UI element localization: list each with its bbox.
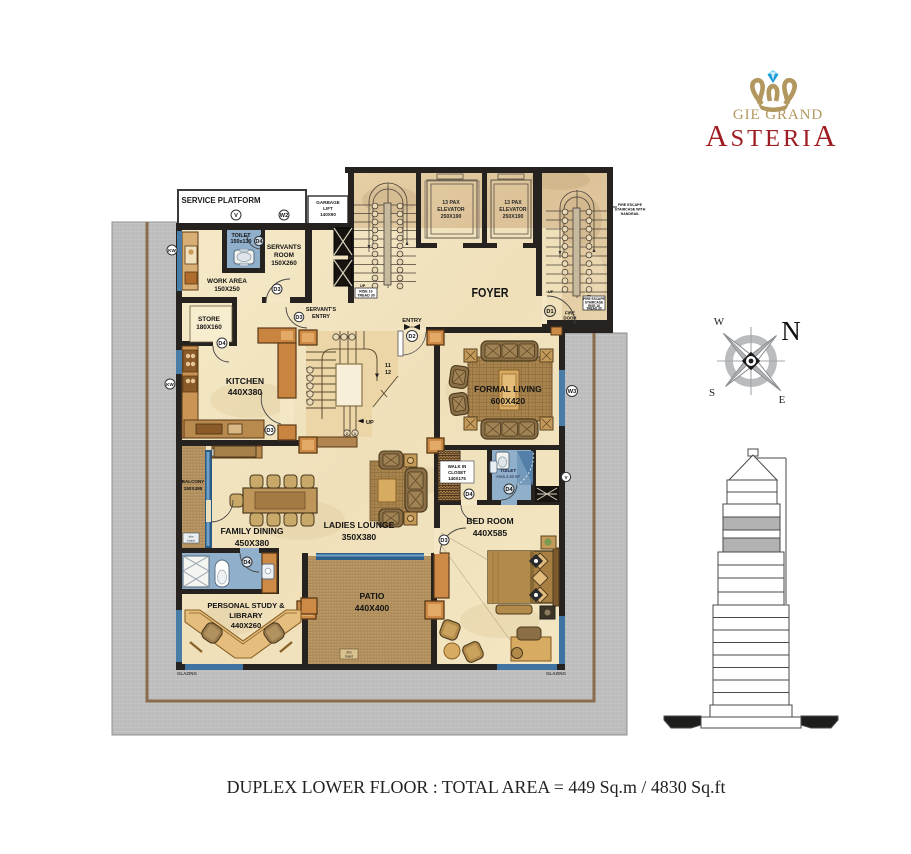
svg-text:12: 12 — [385, 370, 391, 376]
svg-text:D4: D4 — [255, 239, 263, 245]
svg-text:1: 1 — [354, 432, 356, 436]
svg-text:Area 4.40 m²: Area 4.40 m² — [496, 474, 520, 479]
svg-text:150x130: 150x130 — [231, 239, 252, 245]
svg-text:TREAD 30: TREAD 30 — [357, 294, 374, 298]
svg-text:FOYER: FOYER — [472, 286, 509, 300]
svg-text:D3: D3 — [295, 315, 302, 321]
svg-text:GLAZING: GLAZING — [546, 671, 566, 676]
svg-text:KW: KW — [166, 382, 174, 387]
svg-text:ELEVATOR: ELEVATOR — [499, 207, 527, 213]
svg-text:440X400: 440X400 — [355, 603, 390, 613]
svg-text:D4: D4 — [218, 341, 226, 347]
svg-text:W2: W2 — [280, 213, 288, 219]
svg-text:SERVANTS: SERVANTS — [267, 244, 302, 251]
svg-text:BED ROOM: BED ROOM — [466, 516, 513, 526]
svg-text:DOOR: DOOR — [563, 316, 577, 321]
svg-text:D4: D4 — [243, 560, 251, 566]
svg-text:11: 11 — [385, 363, 391, 369]
svg-text:150X495: 150X495 — [184, 486, 203, 491]
svg-text:150X260: 150X260 — [271, 260, 297, 267]
svg-text:N: N — [781, 316, 801, 346]
svg-text:ENTRY: ENTRY — [312, 314, 330, 320]
svg-text:250X190: 250X190 — [441, 214, 462, 220]
svg-text:LIBRARY: LIBRARY — [229, 611, 262, 620]
svg-text:13 PAX: 13 PAX — [504, 200, 522, 206]
svg-text:350X380: 350X380 — [342, 532, 377, 542]
svg-text:UP: UP — [548, 290, 554, 294]
svg-text:450X380: 450X380 — [235, 538, 270, 548]
svg-text:UP: UP — [366, 420, 374, 426]
svg-text:D1: D1 — [546, 309, 553, 315]
svg-text:150X250: 150X250 — [214, 286, 240, 293]
svg-text:WORK AREA: WORK AREA — [207, 278, 247, 285]
svg-text:HANDRAIL: HANDRAIL — [621, 212, 641, 216]
svg-text:KW: KW — [168, 248, 176, 253]
svg-text:board: board — [345, 655, 353, 659]
svg-text:UP: UP — [360, 284, 366, 288]
svg-text:140X90: 140X90 — [320, 212, 336, 217]
svg-text:440X380: 440X380 — [228, 387, 263, 397]
svg-text:board: board — [187, 539, 195, 543]
svg-text:250X190: 250X190 — [503, 214, 524, 220]
svg-text:KITCHEN: KITCHEN — [226, 376, 264, 386]
svg-text:E: E — [779, 394, 786, 406]
svg-text:FORMAL LIVING: FORMAL LIVING — [474, 384, 542, 394]
svg-text:440X260: 440X260 — [231, 621, 261, 630]
svg-text:TOILET: TOILET — [500, 468, 516, 473]
svg-text:GLAZING: GLAZING — [177, 671, 197, 676]
svg-text:13 PAX: 13 PAX — [442, 200, 460, 206]
svg-text:CLOSET: CLOSET — [448, 470, 466, 475]
svg-text:V: V — [234, 213, 238, 219]
svg-text:D2: D2 — [408, 334, 415, 340]
svg-text:D4: D4 — [505, 487, 513, 493]
svg-text:PERSONAL STUDY &: PERSONAL STUDY & — [207, 601, 285, 610]
svg-text:D3: D3 — [266, 428, 273, 434]
svg-text:GARBAGE: GARBAGE — [316, 200, 339, 205]
svg-text:D3: D3 — [273, 287, 280, 293]
svg-text:FAMILY DINING: FAMILY DINING — [220, 526, 283, 536]
svg-text:WALK IN: WALK IN — [448, 464, 467, 469]
svg-text:SERVANT'S: SERVANT'S — [306, 307, 337, 313]
svg-text:ELEVATOR: ELEVATOR — [437, 207, 465, 213]
svg-text:FIRE ESCAPE: FIRE ESCAPE — [618, 203, 643, 207]
svg-text:GIE GRAND: GIE GRAND — [733, 107, 823, 123]
svg-text:S: S — [709, 387, 715, 399]
svg-text:D3: D3 — [440, 538, 447, 544]
svg-text:SERVICE PLATFORM: SERVICE PLATFORM — [182, 196, 261, 205]
svg-text:ROOM: ROOM — [274, 252, 294, 259]
svg-text:ASTERIA: ASTERIA — [705, 119, 838, 153]
svg-text:DUPLEX LOWER FLOOR : TOTAL ARE: DUPLEX LOWER FLOOR : TOTAL AREA = 449 Sq… — [227, 777, 726, 797]
svg-text:180X160: 180X160 — [196, 324, 222, 331]
svg-text:600X420: 600X420 — [491, 396, 526, 406]
svg-text:LIFT: LIFT — [323, 206, 333, 211]
svg-text:W: W — [714, 316, 725, 328]
svg-text:ENTRY: ENTRY — [402, 318, 422, 324]
svg-text:2: 2 — [346, 432, 348, 436]
svg-text:D4: D4 — [465, 492, 473, 498]
svg-text:PATIO: PATIO — [360, 591, 385, 601]
svg-text:440X585: 440X585 — [473, 528, 508, 538]
svg-text:TREAD 30: TREAD 30 — [586, 307, 602, 311]
svg-text:STAIRCASE WITH: STAIRCASE WITH — [615, 208, 646, 212]
svg-text:BALCONY: BALCONY — [182, 479, 205, 484]
svg-text:140X175: 140X175 — [448, 476, 466, 481]
svg-text:LADIES LOUNGE: LADIES LOUNGE — [324, 520, 395, 530]
svg-text:W3: W3 — [568, 389, 576, 395]
svg-text:STORE: STORE — [198, 316, 221, 323]
